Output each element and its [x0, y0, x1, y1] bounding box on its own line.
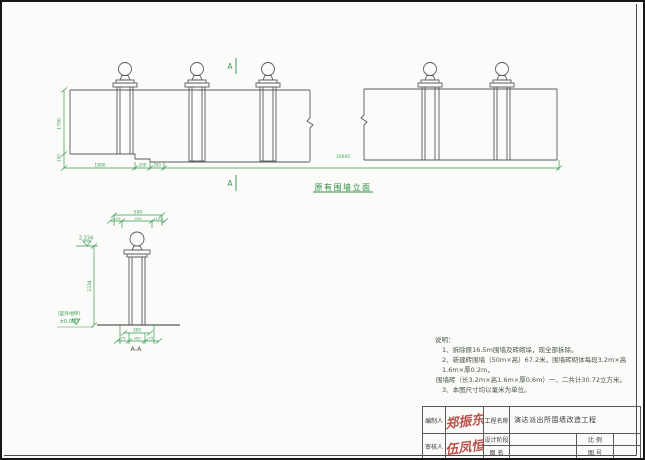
section-marker-bottom: A: [227, 179, 233, 188]
notes-title: 说明：: [435, 335, 637, 345]
blueprint-sheet: 1700 150 1800 200 350 10045 A A 原有围墙立面 5…: [0, 0, 645, 460]
detail-texts: 500 125 250 125 2.234 2234 （室外地坪） ±0.000…: [55, 210, 164, 354]
reviewer-label-cell: 审核人: [423, 434, 446, 459]
detail-post: [97, 232, 180, 325]
stage-label-cell: 设计阶段: [484, 434, 510, 446]
reviewer-signature: 伍凤恒: [446, 435, 484, 459]
detail-dim-base-2: 300: [133, 336, 141, 341]
detail-dim-base-upper: 300: [133, 328, 141, 333]
drawing-number-label-cell: 图 号: [577, 446, 614, 459]
post-1: [113, 63, 137, 155]
drawing-number-value-cell: [614, 446, 640, 459]
detail-dim-base-3: 75: [149, 336, 154, 341]
post-3: [256, 63, 280, 162]
post-5: [490, 63, 514, 161]
detail-dim-height: 2234: [87, 280, 93, 291]
break-line-left: [307, 90, 313, 161]
detail-ground-note: （室外地坪）: [55, 310, 84, 317]
section-marker-top: A: [227, 62, 233, 71]
detail-finial-ball: [130, 232, 144, 246]
reviewer-label: 审核人: [425, 442, 443, 451]
project-name: 演达派出所围墙改造工程: [514, 415, 597, 425]
elevation-dimension-lines: [61, 58, 562, 192]
detail-finial-neck: [132, 246, 142, 250]
post-2: [185, 63, 209, 162]
detail-dim-sub-3: 125: [155, 216, 163, 221]
detail-dim-sub-2: 250: [134, 216, 142, 221]
preparer-signature: 郑振东: [446, 408, 484, 432]
title-block: 编制人 郑振东 工程名称 演达派出所围墙改造工程 审核人 伍凤恒 设计阶段 比 …: [422, 406, 641, 460]
preparer-label-cell: 编制人: [423, 407, 446, 434]
project-name-cell: 演达派出所围墙改造工程: [510, 407, 640, 434]
reviewer-signature-cell: 伍凤恒: [446, 434, 484, 459]
note-line-1: 1、拆除原16.5m围墙及砖砌垛，现全部拆除。: [435, 345, 637, 355]
elevation-posts: [113, 63, 514, 162]
detail-dim-base-1: 75: [121, 336, 126, 341]
drawing-name-label: 图 名: [490, 448, 504, 457]
dim-bottom-3: 350: [153, 163, 161, 168]
detail-cap: [124, 250, 150, 254]
note-line-2-cont: 围墙砖（长3.2m×高1.6m×厚0.6m）一、二共计30.72立方米。: [435, 375, 637, 385]
drawing-name-label-cell: 图 名: [484, 446, 510, 459]
drawing-name-value-cell: [510, 446, 577, 459]
detail-dim-top: 500: [134, 210, 143, 216]
note-line-3: 3、本图尺寸均以毫米为单位。: [435, 385, 637, 395]
post-4: [418, 63, 442, 161]
preparer-label: 编制人: [425, 416, 443, 425]
dim-total-label: 10045: [336, 154, 350, 160]
project-label-cell: 工程名称: [484, 407, 510, 434]
detail-dim-sub-1: 125: [113, 216, 121, 221]
dim-bottom-2: 200: [139, 163, 147, 168]
dim-height-label: 1700: [57, 118, 63, 130]
stage-label: 设计阶段: [484, 435, 508, 444]
scale-value-cell: [614, 434, 640, 446]
scale-label-cell: 比 例: [577, 434, 614, 446]
break-line-right: [361, 89, 367, 160]
detail-cap-lower: [127, 254, 147, 257]
detail-level-ground: ±0.000: [60, 319, 79, 325]
dim-step-label: 150: [57, 154, 62, 162]
drawing-number-label: 图 号: [588, 448, 602, 457]
stage-value-cell: [510, 434, 577, 446]
note-line-2: 2、新建砖围墙（50m×高）67.2米，围墙砖砌体每段3.2m×高1.6m×厚0…: [435, 355, 637, 375]
detail-shaft: [129, 257, 145, 325]
elevation-wall: [70, 89, 557, 162]
project-label: 工程名称: [484, 416, 508, 425]
elevation-texts: 1700 150 1800 200 350 10045 A A 原有围墙立面: [57, 62, 372, 192]
scale-label: 比 例: [588, 435, 602, 444]
notes-block: 说明： 1、拆除原16.5m围墙及砖砌垛，现全部拆除。 2、新建砖围墙（50m×…: [435, 335, 637, 395]
preparer-signature-cell: 郑振东: [446, 407, 484, 434]
detail-caption: A-A: [131, 345, 143, 353]
dim-bottom-1: 1800: [94, 163, 105, 169]
detail-level-top: 2.234: [79, 236, 93, 242]
elevation-caption: 原有围墙立面: [315, 182, 372, 192]
